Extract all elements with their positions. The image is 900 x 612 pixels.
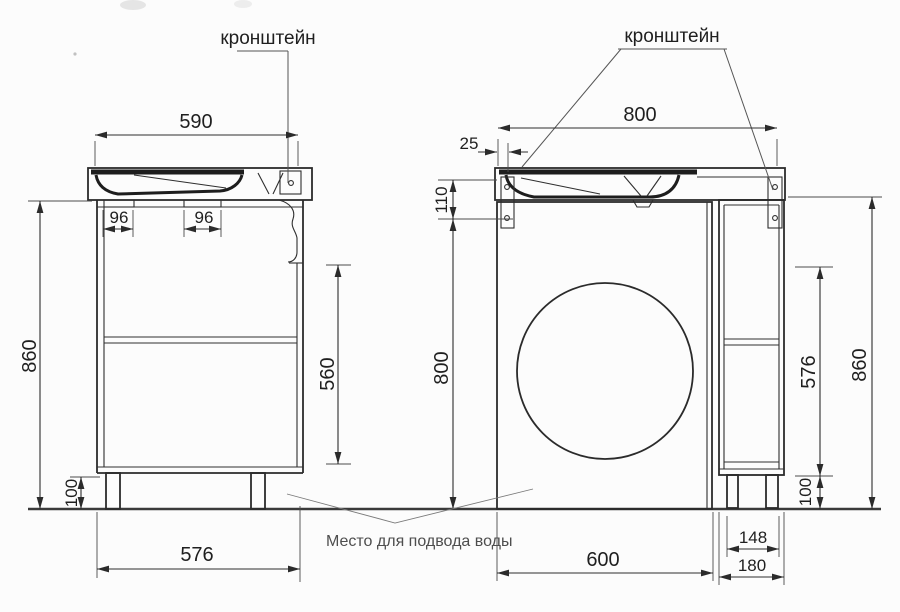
- dim-text-110: 110: [432, 186, 451, 213]
- bracket-screw: [505, 185, 510, 190]
- sink-back-wall: [134, 175, 226, 188]
- dim-drawer-zone: 560: [317, 265, 351, 464]
- bracket-screw: [505, 216, 510, 221]
- dim-sink-width: 590: [95, 111, 298, 166]
- bracket-screw: [773, 185, 778, 190]
- dim-text-860-left: 860: [19, 339, 41, 372]
- dim-text-590: 590: [179, 111, 212, 133]
- dim-text-100-right: 100: [796, 478, 815, 506]
- sink-back-wall: [521, 178, 600, 194]
- dim-niche-height: 800: [431, 219, 453, 509]
- dim-text-800-top: 800: [623, 104, 656, 126]
- bracket-plate: [280, 171, 301, 194]
- leader-line-left: [522, 49, 621, 167]
- dim-total-height: 860: [788, 197, 882, 509]
- dim-text-576-right: 576: [798, 355, 820, 388]
- technical-drawing-page: кронштейн 590 96 96 860: [0, 0, 900, 612]
- dim-body-width: 576: [97, 506, 300, 582]
- dim-text-860-right: 860: [849, 348, 871, 381]
- siphon-cutout-1: [104, 200, 134, 207]
- dim-leg-height-right: 100: [796, 476, 820, 509]
- side-cabinet: [719, 200, 784, 508]
- drawing-svg: кронштейн 590 96 96 860: [0, 0, 900, 612]
- dim-cabinet-inner-height: 576: [795, 267, 833, 476]
- dim-leg-span: 148: [727, 516, 779, 557]
- siphon-cutout-2: [184, 200, 221, 207]
- sink-basin-profile: [96, 175, 242, 194]
- dim-text-148: 148: [739, 528, 767, 547]
- leg-right: [251, 473, 265, 509]
- dim-text-600: 600: [586, 549, 619, 571]
- dim-niche-width: 600: [497, 512, 713, 581]
- dim-text-576-left: 576: [180, 544, 213, 566]
- bracket-label-right: кронштейн: [624, 26, 719, 47]
- smudge: [234, 0, 252, 8]
- sink-basin-profile: [506, 175, 679, 197]
- bracket-callout-left: кронштейн: [220, 28, 315, 183]
- sink-drain-funnel: [258, 173, 283, 194]
- washing-machine: [497, 202, 712, 509]
- cabinet-body: [719, 200, 784, 475]
- bracket-label-left: кронштейн: [220, 28, 315, 49]
- leg-right: [766, 475, 778, 508]
- dim-leg-height-left: 100: [62, 477, 100, 509]
- bracket-screw: [289, 181, 294, 186]
- bracket-screw: [773, 216, 778, 221]
- water-supply-callout: Место для подвода воды: [287, 489, 533, 550]
- dim-cutout-left: 96: [103, 208, 133, 237]
- drain-pipe: [279, 200, 297, 262]
- dim-text-180: 180: [738, 556, 766, 575]
- leg-left: [106, 473, 120, 509]
- machine-body: [497, 202, 712, 509]
- dim-text-100-left: 100: [62, 479, 81, 507]
- left-cabinet: [97, 200, 303, 509]
- left-view: кронштейн 590 96 96 860: [19, 28, 351, 582]
- right-view: кронштейн 800 25 110: [431, 26, 882, 585]
- dim-text-560: 560: [317, 357, 339, 390]
- smudge: [120, 0, 146, 10]
- dim-cutout-center: 96: [184, 208, 221, 237]
- water-supply-note: Место для подвода воды: [326, 533, 512, 550]
- dim-text-96b: 96: [195, 208, 214, 227]
- dim-countertop-width: 800: [498, 104, 777, 166]
- dim-edge-offset: 25: [460, 134, 528, 172]
- dim-height-left: 860: [19, 201, 92, 509]
- right-sink: [495, 168, 785, 228]
- leg-left: [727, 475, 738, 508]
- sink-drain-funnel: [624, 176, 661, 196]
- dim-text-800-left: 800: [431, 351, 453, 384]
- dim-text-25: 25: [460, 134, 479, 153]
- dim-text-96a: 96: [110, 208, 129, 227]
- speck: [73, 52, 76, 55]
- machine-drum-door: [517, 283, 693, 459]
- drain-outlet: [633, 200, 653, 207]
